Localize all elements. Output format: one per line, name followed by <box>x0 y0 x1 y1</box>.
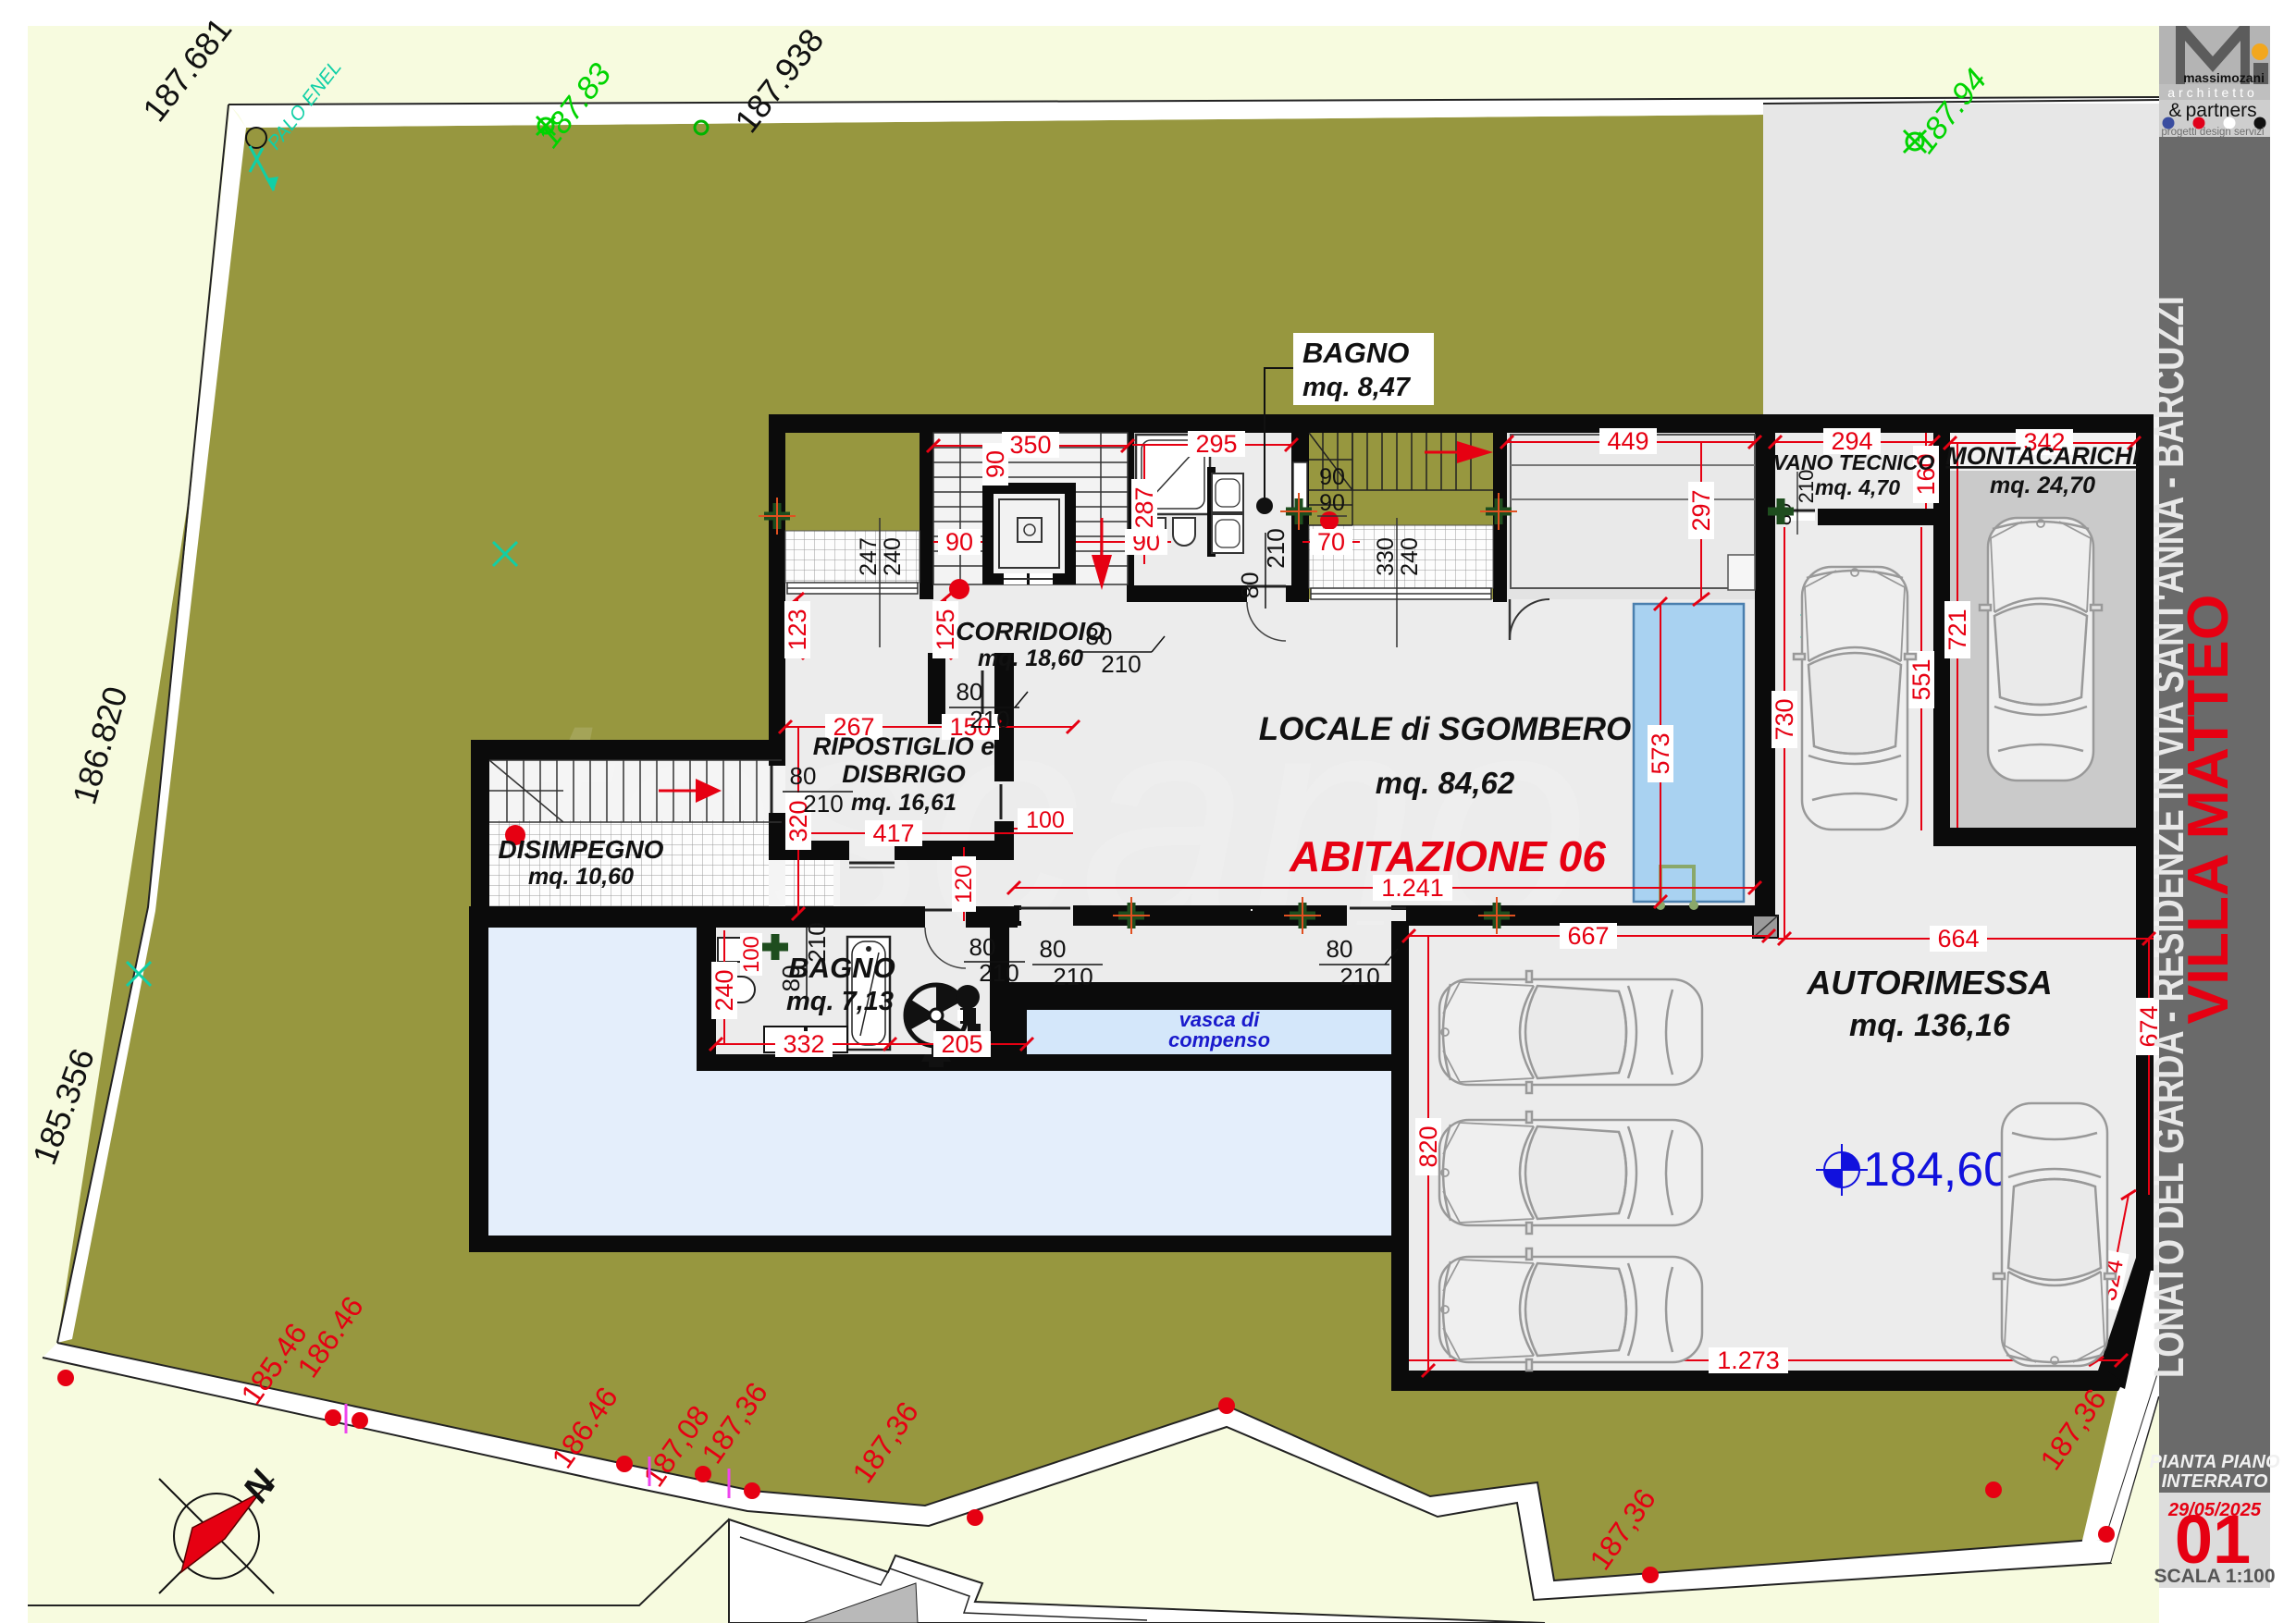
svg-text:massimozani: massimozani <box>2183 70 2265 85</box>
svg-text:90: 90 <box>1319 490 1345 516</box>
svg-text:100: 100 <box>1026 807 1065 833</box>
svg-text:332: 332 <box>783 1030 824 1058</box>
svg-text:mq. 10,60: mq. 10,60 <box>528 864 634 890</box>
svg-text:664: 664 <box>1937 925 1979 953</box>
svg-text:80: 80 <box>957 678 983 706</box>
svg-text:417: 417 <box>872 819 914 847</box>
svg-text:SCALA 1:100: SCALA 1:100 <box>2154 1566 2275 1587</box>
svg-text:210: 210 <box>1101 650 1141 678</box>
svg-text:573: 573 <box>1647 732 1674 774</box>
svg-text:100: 100 <box>739 936 764 973</box>
svg-text:BAGNO: BAGNO <box>1302 337 1409 369</box>
svg-text:295: 295 <box>1195 430 1237 458</box>
svg-text:330: 330 <box>1373 537 1399 576</box>
svg-text:210: 210 <box>803 790 843 818</box>
svg-text:80: 80 <box>790 762 817 790</box>
svg-text:90: 90 <box>981 450 1009 478</box>
svg-text:210: 210 <box>969 706 1009 733</box>
svg-text:240: 240 <box>1397 537 1423 576</box>
svg-text:MONTACARICHI: MONTACARICHI <box>1945 442 2140 470</box>
svg-text:VILLA MATTEO: VILLA MATTEO <box>2177 595 2240 1025</box>
svg-text:721: 721 <box>1944 609 1971 650</box>
svg-text:820: 820 <box>1414 1125 1442 1167</box>
svg-text:mq. 18,60: mq. 18,60 <box>978 646 1083 671</box>
svg-text:CORRIDOIO: CORRIDOIO <box>956 617 1105 646</box>
svg-text:210: 210 <box>979 959 1018 987</box>
svg-text:mq. 136,16: mq. 136,16 <box>1849 1008 2011 1043</box>
svg-text:184,60: 184,60 <box>1863 1143 2010 1197</box>
svg-text:240: 240 <box>880 537 906 576</box>
svg-text:205: 205 <box>941 1030 982 1058</box>
svg-text:123: 123 <box>784 609 811 650</box>
svg-text:mq. 7,13: mq. 7,13 <box>786 987 894 1016</box>
svg-text:1.273: 1.273 <box>1717 1346 1780 1374</box>
svg-text:LOCALE di SGOMBERO: LOCALE di SGOMBERO <box>1259 711 1632 747</box>
svg-text:DISBRIGO: DISBRIGO <box>842 760 966 788</box>
svg-text:DISIMPEGNO: DISIMPEGNO <box>499 835 664 864</box>
svg-text:VANO TECNICO: VANO TECNICO <box>1773 450 1935 474</box>
svg-text:mq. 84,62: mq. 84,62 <box>1376 766 1515 800</box>
svg-text:AUTORIMESSA: AUTORIMESSA <box>1806 964 2052 1002</box>
svg-text:INTERRATO: INTERRATO <box>2162 1471 2268 1492</box>
svg-text:240: 240 <box>710 969 738 1011</box>
svg-text:90: 90 <box>945 528 973 556</box>
svg-text:210: 210 <box>1053 963 1092 990</box>
svg-text:ABITAZIONE 06: ABITAZIONE 06 <box>1289 832 1606 880</box>
svg-text:287: 287 <box>1130 486 1158 528</box>
svg-text:120: 120 <box>951 865 977 904</box>
svg-text:297: 297 <box>1687 489 1715 531</box>
svg-text:& partners: & partners <box>2168 100 2256 121</box>
svg-text:667: 667 <box>1567 922 1609 950</box>
svg-text:350: 350 <box>1009 431 1051 459</box>
svg-text:70: 70 <box>1317 528 1345 556</box>
svg-text:architetto: architetto <box>2167 85 2258 100</box>
svg-text:RIPOSTIGLIO e: RIPOSTIGLIO e <box>813 732 995 760</box>
svg-text:mq. 4,70: mq. 4,70 <box>1815 475 1900 499</box>
svg-text:mq. 24,70: mq. 24,70 <box>1990 473 2095 498</box>
svg-text:247: 247 <box>856 537 882 576</box>
svg-text:90: 90 <box>1319 464 1345 490</box>
svg-text:210: 210 <box>1339 963 1379 990</box>
svg-text:PIANTA PIANO: PIANTA PIANO <box>2149 1452 2280 1472</box>
svg-text:mq. 16,61: mq. 16,61 <box>851 790 957 816</box>
svg-text:80: 80 <box>1236 572 1264 599</box>
svg-text:551: 551 <box>1907 658 1935 700</box>
svg-text:progetti design servizi: progetti design servizi <box>2161 127 2264 138</box>
svg-text:80: 80 <box>1040 935 1067 963</box>
svg-text:449: 449 <box>1607 427 1648 455</box>
svg-text:80: 80 <box>1327 935 1353 963</box>
svg-text:BAGNO: BAGNO <box>788 952 895 984</box>
svg-text:80: 80 <box>969 933 996 961</box>
svg-text:compenso: compenso <box>1168 1028 1270 1051</box>
svg-text:mq. 8,47: mq. 8,47 <box>1302 373 1412 402</box>
svg-text:730: 730 <box>1771 698 1798 740</box>
